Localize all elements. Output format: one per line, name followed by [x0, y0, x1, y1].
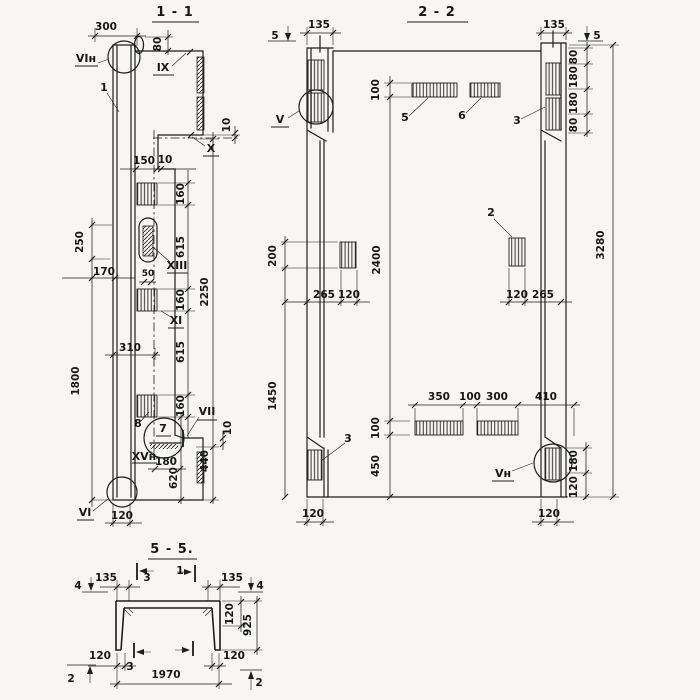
dim-925: 925 [242, 614, 254, 636]
cut-arrow-left-bottom [136, 649, 144, 655]
embedded-plate [308, 450, 322, 480]
dim-120-flange: 120 [224, 603, 236, 625]
node-label-Vn: Vн [495, 467, 511, 480]
dim-620: 620 [168, 467, 180, 489]
embedded-plate [308, 60, 324, 90]
dim-10-vii: 10 [222, 421, 234, 436]
dim-3280: 3280 [595, 230, 607, 259]
dim-200: 200 [267, 245, 279, 267]
node-label-VIn: VIн [76, 52, 96, 65]
embedded-plate [340, 242, 356, 268]
embedded-plate [308, 93, 324, 122]
dim-180: 180 [568, 66, 580, 88]
embedded-plate [509, 238, 525, 266]
item-label-1: 1 [100, 81, 108, 94]
channel-outline [116, 601, 220, 650]
cut-arrow-right-top [184, 569, 192, 575]
dim-265: 265 [532, 289, 554, 301]
cut-label-2-right: 2 [255, 677, 262, 689]
dim-135-right: 135 [543, 19, 565, 31]
dim-265: 265 [313, 289, 335, 301]
dim-160: 160 [175, 395, 187, 417]
node-label-XVn: XVн [132, 450, 157, 463]
dim-310: 310 [119, 342, 141, 354]
dim-1800: 1800 [70, 366, 82, 395]
dim-300: 300 [486, 391, 508, 403]
dim-180-right: 180 [568, 450, 580, 472]
dim-120-bottom-right: 120 [538, 508, 560, 520]
extension-lines [117, 580, 262, 689]
cut-label-4-right: 4 [256, 580, 263, 592]
dim-350: 350 [428, 391, 450, 403]
dim-170: 170 [93, 266, 115, 278]
dim-10: 10 [158, 154, 173, 166]
item-label-8: 8 [134, 417, 142, 430]
dim-10-top: 10 [221, 118, 233, 133]
node-label-XI: XI [170, 314, 183, 327]
dim-135-left: 135 [95, 572, 117, 584]
node-label-VII: VII [199, 405, 216, 418]
dim-100-top: 100 [370, 79, 382, 101]
dim-100-gap: 100 [459, 391, 481, 403]
embedded-plate [137, 289, 157, 311]
axis-dashed-line [153, 130, 240, 462]
dim-120-bottom-left: 120 [302, 508, 324, 520]
embedded-plate [470, 83, 500, 97]
cut-label-2-left: 2 [67, 673, 74, 685]
cut-label-1-top: 1 [176, 565, 183, 577]
item-label-6: 6 [458, 109, 466, 122]
cut-label-5-right: 5 [593, 30, 600, 42]
dim-180: 180 [155, 456, 177, 468]
cut-arrow-down-right [584, 33, 590, 41]
dim-410: 410 [535, 391, 557, 403]
dim-135-right: 135 [221, 572, 243, 584]
corner-fillet-marks [124, 609, 212, 616]
cut-label-3-bottom: 3 [126, 661, 133, 673]
cut-label-5-left: 5 [271, 30, 278, 42]
embedded-plate [477, 421, 518, 435]
dim-450: 450 [370, 455, 382, 477]
embedded-plate [137, 183, 157, 205]
cut-arrow-right-bottom [182, 647, 190, 653]
embedded-plate [545, 448, 561, 480]
dim-120: 120 [338, 289, 360, 301]
embedded-plate [137, 395, 157, 417]
dim-120-bottom-left: 120 [89, 650, 111, 662]
cut-arrow-up-right [248, 671, 254, 679]
edge-plate [197, 97, 204, 130]
section-title: 2 - 2 [418, 5, 456, 20]
dim-440: 440 [199, 450, 211, 472]
dim-615: 615 [175, 236, 187, 258]
section-1-1: 1 - 1 300 80 VIн 1 IX 10 X 150 10 160 61… [62, 5, 240, 527]
leader-lines [288, 98, 545, 471]
angle-detail-hatch [150, 444, 178, 449]
dim-160: 160 [175, 183, 187, 205]
cut-label-3-top: 3 [143, 572, 150, 584]
dim-100-bottom: 100 [370, 417, 382, 439]
dim-80: 80 [568, 50, 580, 65]
dim-120-right: 120 [568, 476, 580, 498]
dim-120-bottom-right: 120 [223, 650, 245, 662]
embedded-plate [415, 421, 463, 435]
section-title: 1 - 1 [156, 5, 194, 20]
embedded-plate [546, 98, 561, 130]
dim-120: 120 [111, 510, 133, 522]
item-label-7: 7 [159, 422, 167, 435]
dimension-ticks [114, 584, 260, 687]
technical-drawing: 1 - 1 300 80 VIн 1 IX 10 X 150 10 160 61… [0, 0, 700, 700]
dim-180: 180 [568, 92, 580, 114]
node-label-IX: IX [157, 61, 170, 74]
item-label-5: 5 [401, 111, 409, 124]
dimension-ticks [89, 33, 238, 526]
node-label-XIII: XIII [167, 259, 188, 272]
dim-160: 160 [175, 289, 187, 311]
dim-135-left: 135 [308, 19, 330, 31]
node-circle-bottom [107, 477, 137, 507]
edge-plate [197, 57, 204, 93]
dim-50: 50 [142, 269, 155, 279]
cut-arrow-down-left [88, 583, 94, 591]
dim-250: 250 [74, 231, 86, 253]
slot-detail-inner [143, 226, 153, 256]
dim-615: 615 [175, 341, 187, 363]
dim-150: 150 [133, 155, 155, 167]
embedded-plate [412, 83, 457, 97]
dim-80: 80 [152, 37, 164, 52]
dim-2250: 2250 [199, 277, 211, 306]
node-label-VI: VI [79, 506, 92, 519]
embedded-plate [546, 63, 561, 95]
item-label-2: 2 [487, 206, 495, 219]
cut-label-4-left: 4 [74, 580, 81, 592]
node-label-V: V [276, 113, 285, 126]
dim-1970: 1970 [151, 669, 180, 681]
drawing-sheet: 1 - 1 300 80 VIн 1 IX 10 X 150 10 160 61… [0, 0, 700, 700]
dim-1450: 1450 [267, 381, 279, 410]
cut-arrow-down-left [285, 33, 291, 41]
section-5-5: 5 - 5. 4 135 3 1 135 4 120 925 120 3 120… [67, 542, 264, 690]
section-title: 5 - 5. [150, 542, 193, 557]
dim-80: 80 [568, 118, 580, 133]
node-label-X: X [207, 142, 216, 155]
section-2-2: 2 - 2 5 5 135 135 80 180 180 80 3280 V 3… [267, 5, 619, 526]
cut-arrow-down-right [248, 583, 254, 591]
dim-300: 300 [95, 21, 117, 33]
item-label-3-top: 3 [513, 114, 521, 127]
cut-arrow-up-left [87, 666, 93, 674]
dim-120: 120 [506, 289, 528, 301]
dim-2400: 2400 [371, 245, 383, 274]
item-label-3-bottom: 3 [344, 432, 352, 445]
